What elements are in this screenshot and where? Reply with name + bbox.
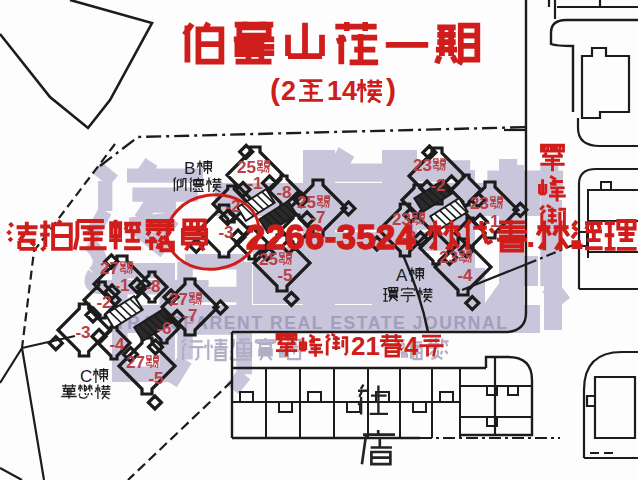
svg-text:-1: -1	[114, 276, 129, 295]
svg-text:14: 14	[327, 76, 357, 106]
svg-text:23: 23	[413, 156, 432, 175]
svg-text:C: C	[80, 367, 92, 386]
svg-text:-4: -4	[457, 266, 473, 285]
svg-text:-1: -1	[247, 174, 262, 193]
svg-text:-3: -3	[218, 223, 233, 242]
svg-text:-6: -6	[156, 319, 171, 338]
svg-text:-2: -2	[96, 293, 111, 312]
svg-text:-5: -5	[277, 266, 292, 285]
svg-text:A: A	[396, 266, 408, 285]
svg-text:23: 23	[470, 194, 489, 213]
svg-text:.: .	[526, 216, 535, 254]
svg-text:21: 21	[351, 331, 380, 361]
svg-text:27: 27	[126, 353, 145, 372]
svg-text:(: (	[270, 73, 280, 106]
svg-text:-4: -4	[109, 335, 125, 354]
svg-text:-5: -5	[148, 369, 163, 388]
svg-text:4: 4	[404, 331, 419, 361]
svg-text:): )	[386, 73, 396, 106]
svg-text:-7: -7	[182, 306, 197, 325]
svg-text:-8: -8	[276, 183, 291, 202]
svg-text:-3: -3	[75, 323, 90, 342]
svg-text:-8: -8	[145, 277, 160, 296]
svg-text:B: B	[184, 159, 195, 178]
svg-text:2: 2	[281, 76, 296, 106]
svg-text:2266-3524: 2266-3524	[246, 218, 416, 256]
svg-text:-2: -2	[430, 176, 445, 195]
svg-text:23: 23	[439, 248, 458, 267]
